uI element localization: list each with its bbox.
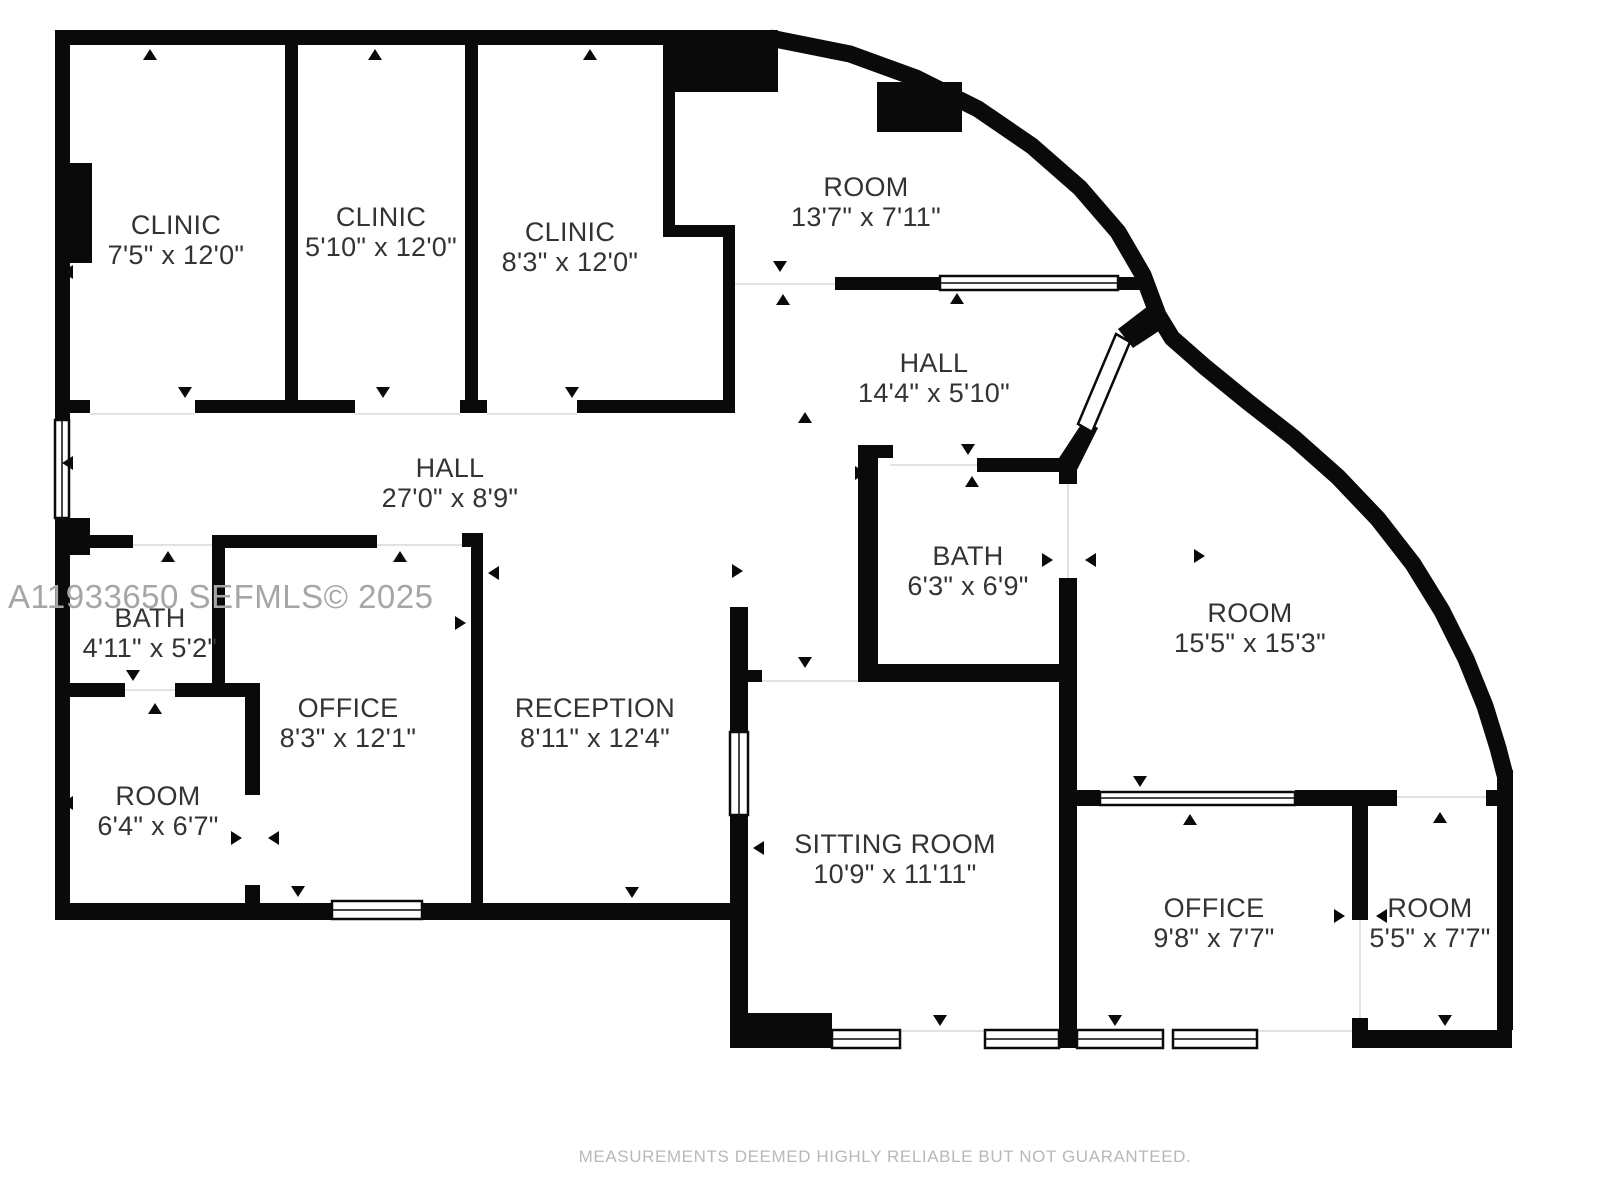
wall: [748, 670, 762, 682]
room-label-room-top: ROOM: [823, 172, 908, 202]
arrow-down-icon: [625, 887, 639, 898]
arrow-right-icon: [732, 564, 743, 578]
window-icon: [1077, 1030, 1163, 1048]
wall: [245, 885, 260, 903]
wall: [225, 535, 377, 548]
arrow-left-icon: [753, 841, 764, 855]
arrow-right-icon: [1334, 909, 1345, 923]
wall: [730, 1013, 832, 1048]
room-label-clinic-1: CLINIC: [131, 210, 221, 240]
room-dims-reception: 8'11" x 12'4": [520, 723, 670, 753]
window-icon: [832, 1030, 900, 1048]
room-dims-clinic-3: 8'3" x 12'0": [502, 247, 639, 277]
wall: [730, 607, 748, 732]
arrow-up-icon: [143, 49, 157, 60]
wall: [977, 458, 1073, 472]
window-icon: [332, 901, 422, 919]
arrow-up-icon: [1433, 812, 1447, 823]
wall: [1497, 770, 1513, 1030]
room-dims-sitting-room: 10'9" x 11'11": [813, 859, 976, 889]
wall: [663, 225, 735, 237]
room-label-room-large: ROOM: [1207, 598, 1292, 628]
window-icon: [730, 732, 748, 815]
wall: [55, 518, 70, 903]
arrow-down-icon: [565, 387, 579, 398]
room-label-hall-main: HALL: [416, 453, 485, 483]
wall: [1059, 1030, 1077, 1048]
arrow-up-icon: [161, 551, 175, 562]
wall: [1352, 1030, 1512, 1048]
arrow-up-icon: [1183, 814, 1197, 825]
wall: [723, 237, 735, 413]
walls: [55, 30, 1513, 1048]
arrow-down-icon: [376, 387, 390, 398]
room-label-office-left: OFFICE: [298, 693, 399, 723]
room-dims-office-left: 8'3" x 12'1": [280, 723, 417, 753]
arrow-down-icon: [1438, 1015, 1452, 1026]
arrow-down-icon: [961, 444, 975, 455]
window-icon: [55, 420, 69, 518]
wall: [285, 45, 298, 413]
room-dims-clinic-2: 5'10" x 12'0": [305, 232, 457, 262]
room-label-bath-right: BATH: [932, 541, 1003, 571]
arrow-down-icon: [1133, 776, 1147, 787]
arrow-up-icon: [393, 551, 407, 562]
wall: [55, 163, 92, 263]
arrow-left-icon: [1376, 909, 1387, 923]
arrow-down-icon: [773, 261, 787, 272]
wall: [55, 683, 125, 697]
room-dims-bath-right: 6'3" x 6'9": [907, 571, 1028, 601]
arrow-right-icon: [455, 616, 466, 630]
wall: [175, 683, 260, 697]
arrow-right-icon: [1194, 549, 1205, 563]
room-dims-room-large: 15'5" x 15'3": [1174, 628, 1326, 658]
arrow-up-icon: [368, 49, 382, 60]
arrow-up-icon: [965, 476, 979, 487]
arrow-up-icon: [798, 412, 812, 423]
wall: [1059, 790, 1100, 806]
wall: [55, 400, 90, 413]
window-icon: [985, 1030, 1059, 1048]
wall: [1059, 470, 1077, 484]
arrow-right-icon: [1042, 553, 1053, 567]
arrow-down-icon: [291, 886, 305, 897]
floor-plan-page: CLINIC 7'5" x 12'0" CLINIC 5'10" x 12'0"…: [0, 0, 1600, 1200]
room-label-clinic-2: CLINIC: [336, 202, 426, 232]
arrow-left-icon: [268, 831, 279, 845]
windows: [55, 276, 1295, 1048]
wall: [465, 45, 478, 413]
arrow-up-icon: [583, 49, 597, 60]
wall: [730, 815, 748, 1013]
wall: [835, 277, 940, 290]
wall: [68, 535, 133, 548]
room-dims-bath-small: 4'11" x 5'2": [83, 633, 218, 663]
room-dims-hall-upper: 14'4" x 5'10": [858, 378, 1010, 408]
wall: [462, 533, 483, 547]
arrow-up-icon: [776, 294, 790, 305]
room-label-room-small: ROOM: [115, 781, 200, 811]
wall: [1352, 1018, 1368, 1032]
wall: [1295, 790, 1397, 806]
window-icon: [1078, 334, 1130, 432]
mls-watermark: A11933650 SEFMLS© 2025: [8, 578, 433, 615]
room-dims-hall-main: 27'0" x 8'9": [382, 483, 519, 513]
arrow-down-icon: [933, 1015, 947, 1026]
arrow-right-icon: [231, 831, 242, 845]
room-dims-office-right: 9'8" x 7'7": [1153, 923, 1274, 953]
room-label-sitting-room: SITTING ROOM: [794, 829, 996, 859]
arrow-down-icon: [178, 387, 192, 398]
arrow-up-icon: [148, 703, 162, 714]
arrow-left-icon: [488, 566, 499, 580]
arrow-down-icon: [798, 657, 812, 668]
arrow-left-icon: [1085, 553, 1096, 567]
arrow-down-icon: [1108, 1015, 1122, 1026]
wall: [212, 535, 225, 697]
room-dims-room-top: 13'7" x 7'11": [791, 202, 941, 232]
floor-plan-svg: CLINIC 7'5" x 12'0" CLINIC 5'10" x 12'0"…: [0, 0, 1600, 1200]
window-icon: [940, 276, 1118, 290]
room-label-office-right: OFFICE: [1164, 893, 1265, 923]
room-dims-room-small: 6'4" x 6'7": [97, 811, 218, 841]
room-label-reception: RECEPTION: [515, 693, 675, 723]
wall: [858, 445, 878, 682]
room-dims-clinic-1: 7'5" x 12'0": [108, 240, 245, 270]
wall: [195, 400, 355, 413]
room-label-clinic-3: CLINIC: [525, 217, 615, 247]
wall: [1352, 806, 1368, 920]
wall: [1059, 578, 1077, 790]
room-label-room-bottom: ROOM: [1387, 893, 1472, 923]
window-icon: [1173, 1030, 1257, 1048]
wall: [1059, 790, 1077, 1048]
wall: [471, 547, 483, 903]
arrow-up-icon: [950, 293, 964, 304]
disclaimer-text: MEASUREMENTS DEEMED HIGHLY RELIABLE BUT …: [579, 1147, 1192, 1166]
wall: [460, 400, 487, 413]
wall: [663, 92, 675, 232]
room-dims-room-bottom: 5'5" x 7'7": [1369, 923, 1490, 953]
wall: [663, 30, 778, 92]
window-icon: [1100, 792, 1295, 805]
room-label-hall-upper: HALL: [900, 348, 969, 378]
wall: [577, 400, 735, 413]
wall: [245, 697, 260, 795]
arrow-down-icon: [126, 670, 140, 681]
wall: [858, 664, 1077, 682]
